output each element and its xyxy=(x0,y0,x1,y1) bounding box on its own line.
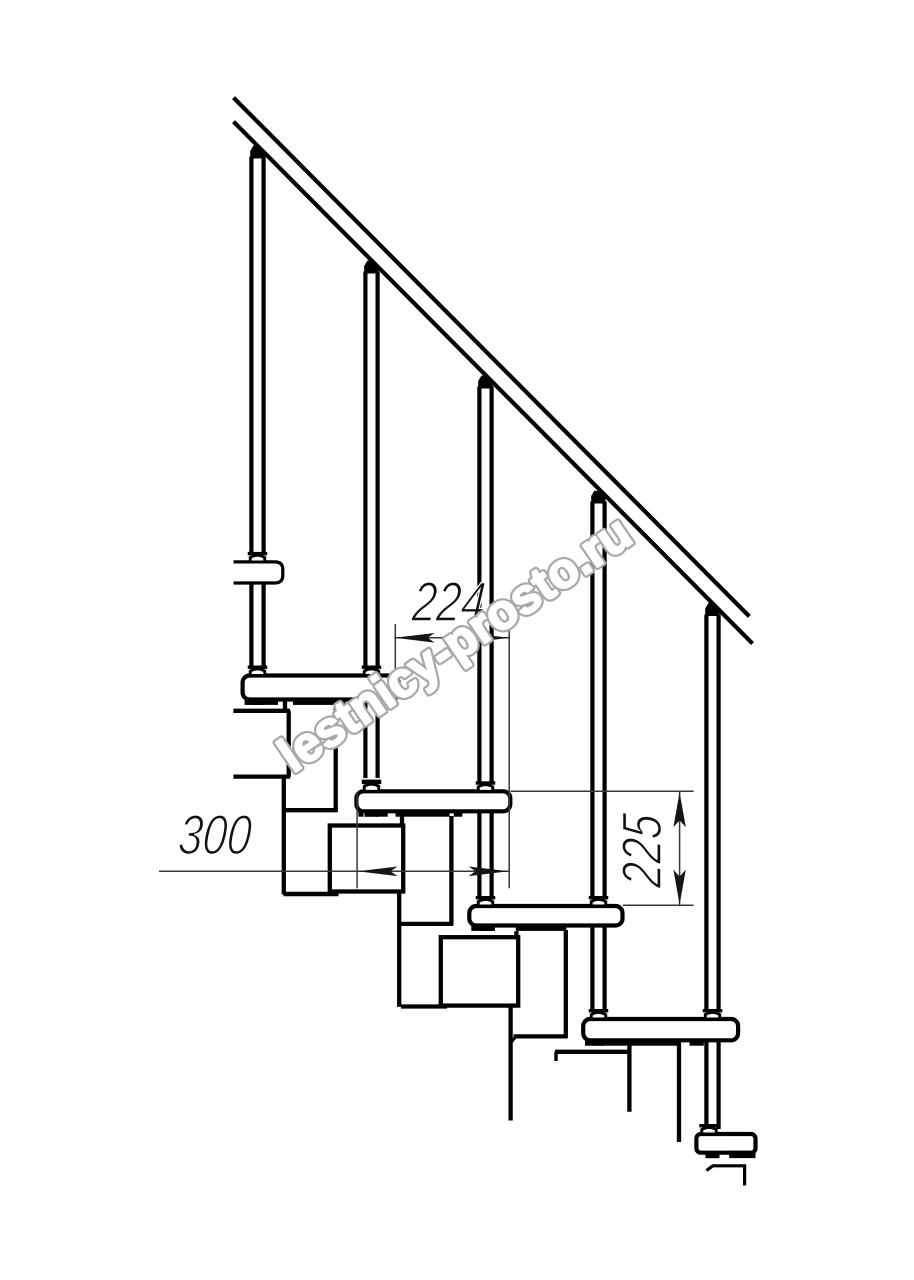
svg-text:300: 300 xyxy=(176,803,254,866)
svg-text:225: 225 xyxy=(610,810,673,890)
